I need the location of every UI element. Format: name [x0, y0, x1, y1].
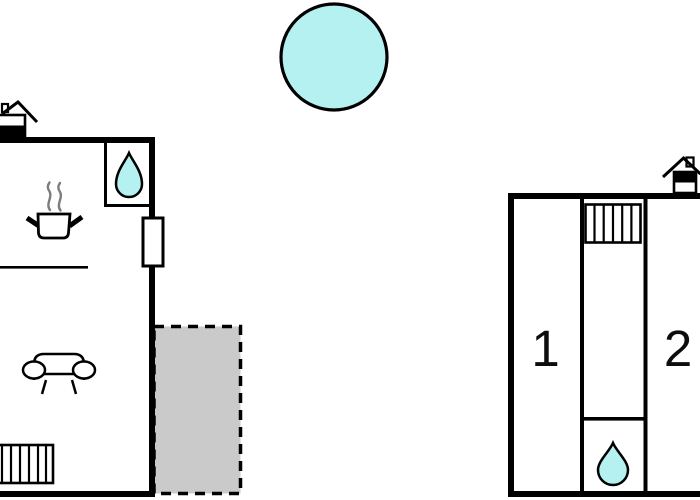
house-entrance-icon: [663, 158, 700, 194]
annex-bottom-wall: [508, 491, 700, 497]
annex-top-wall: [508, 193, 700, 199]
house-body-fill: [0, 126, 25, 138]
house-body-fill: [674, 172, 696, 183]
window-icon: [143, 218, 163, 266]
steam-wave-icon: [48, 183, 50, 211]
annex-inner-wall-right: [644, 196, 648, 492]
sofa-leg-right: [72, 380, 76, 394]
steam-wave-icon: [58, 183, 60, 211]
terrace-area: [154, 327, 241, 494]
stairs-icon: [586, 205, 641, 243]
water-drop-icon: [598, 443, 628, 485]
annex-left-wall: [508, 193, 514, 497]
floor-plan-svg: 1 2: [0, 0, 700, 500]
right-building: 1 2: [508, 158, 700, 498]
pot-handle-right-icon: [70, 217, 83, 226]
stove-pot-icon: [27, 214, 82, 238]
bathroom-wall-left: [104, 140, 107, 207]
room-2-label: 2: [664, 320, 692, 377]
sofa-leg-left: [42, 380, 46, 394]
sofa-icon: [23, 354, 95, 394]
floor-plan: 1 2: [0, 0, 700, 500]
water-drop-icon: [116, 153, 142, 197]
sofa-arm-right: [73, 362, 95, 379]
pot-body-icon: [38, 214, 70, 238]
left-building: [0, 102, 163, 497]
annex-inner-wall-left: [580, 196, 584, 492]
stairs-icon: [0, 445, 53, 483]
left-building-bottom-wall: [0, 491, 155, 497]
steam-icon: [48, 183, 61, 211]
house-entrance-icon: [0, 102, 37, 137]
left-building-right-wall: [149, 137, 155, 497]
pool-circle-icon: [281, 4, 387, 110]
hall-divider-wall: [582, 417, 646, 421]
room-1-label: 1: [531, 320, 559, 377]
bathroom-wall-bottom: [104, 204, 152, 207]
counter-line: [0, 266, 88, 269]
sofa-arm-left: [23, 362, 45, 379]
